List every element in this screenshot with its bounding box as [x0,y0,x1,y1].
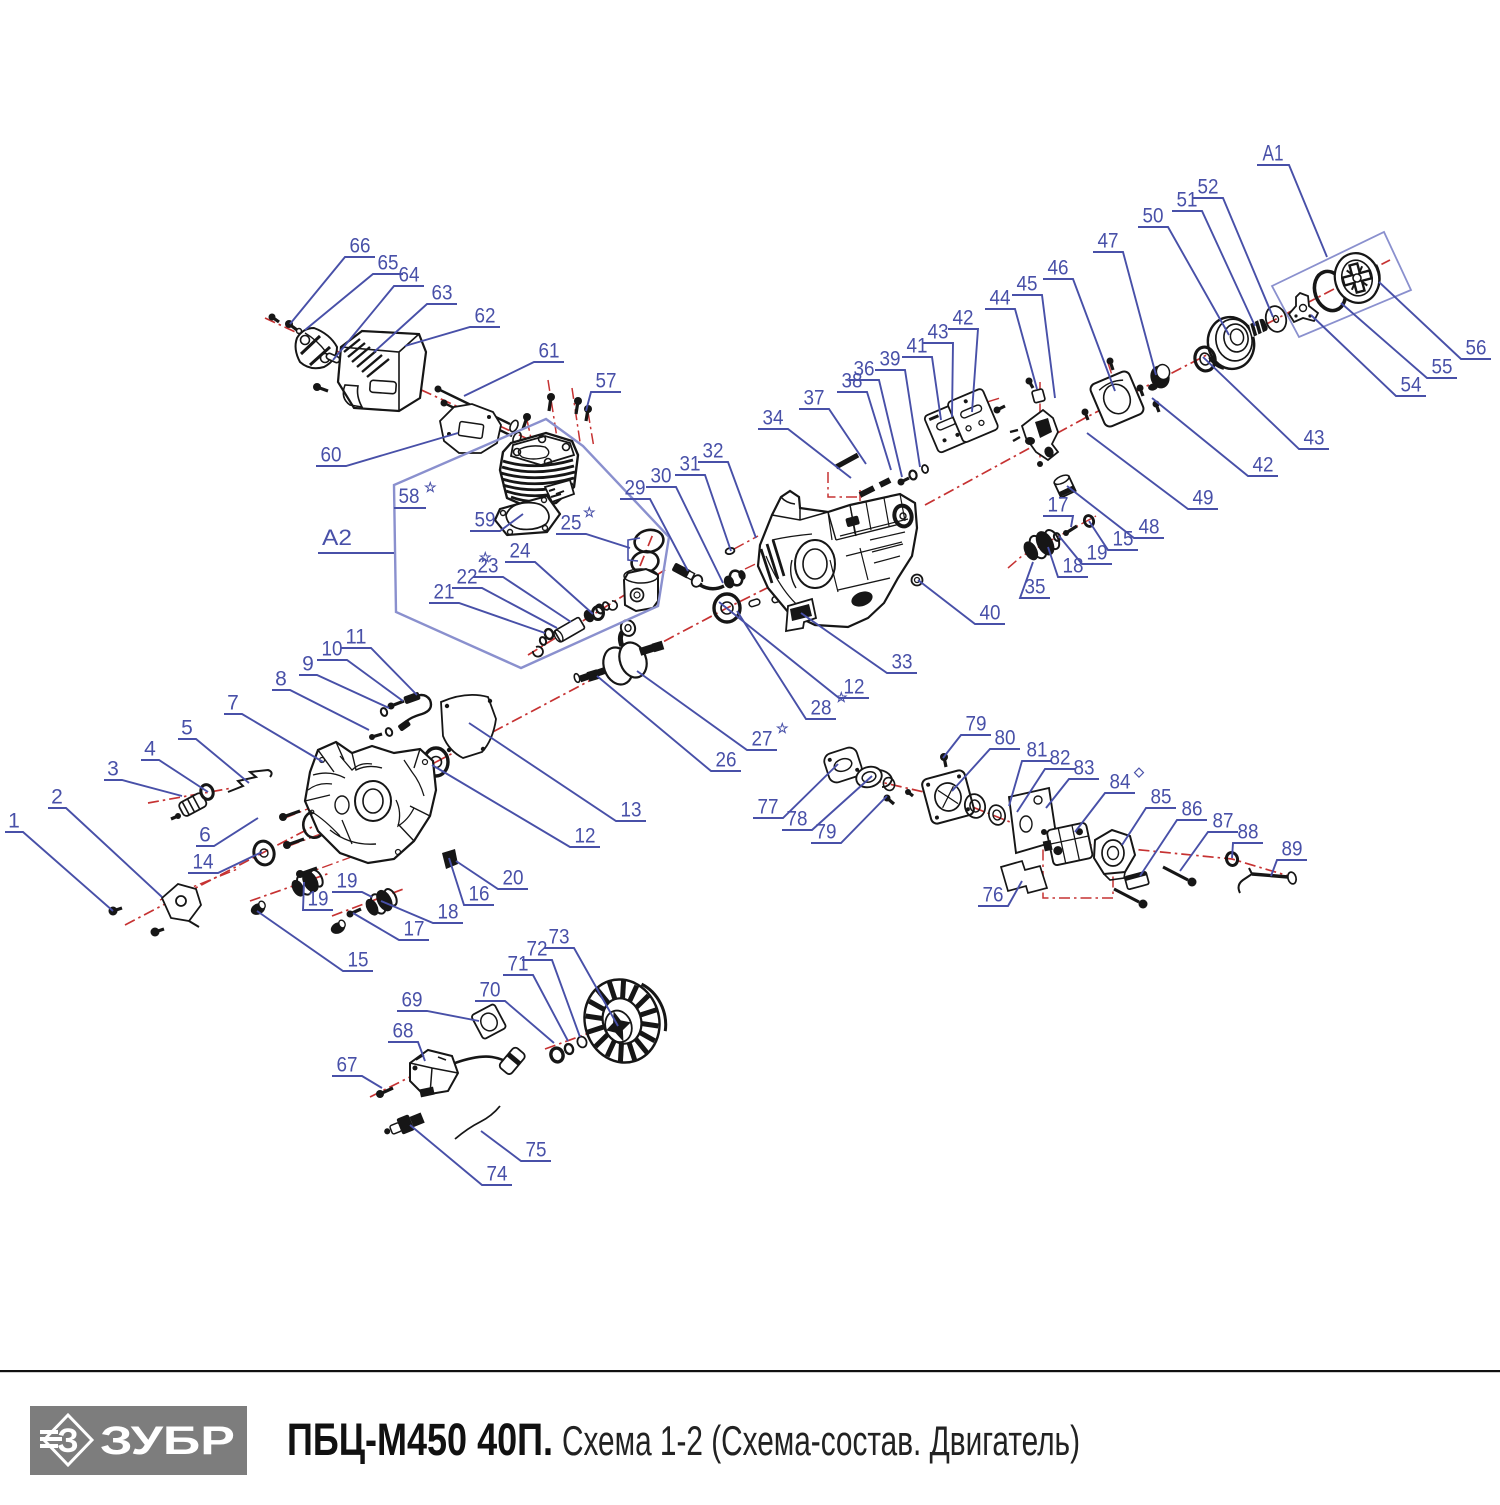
svg-text:46: 46 [1048,257,1069,280]
svg-text:79: 79 [966,713,987,736]
svg-text:28: 28 [811,697,832,720]
svg-text:42: 42 [1253,454,1274,477]
svg-text:33: 33 [892,651,913,674]
svg-text:51: 51 [1177,189,1198,212]
svg-text:20: 20 [503,867,524,890]
svg-text:39: 39 [880,348,901,371]
svg-text:17: 17 [404,918,425,941]
svg-text:73: 73 [549,926,570,949]
svg-text:37: 37 [804,387,825,410]
svg-text:15: 15 [1113,528,1134,551]
svg-text:7: 7 [227,692,239,715]
svg-text:ПБЦ-М450 40П.: ПБЦ-М450 40П. [287,1414,553,1465]
svg-text:86: 86 [1182,798,1203,821]
svg-text:47: 47 [1098,230,1119,253]
svg-text:ЗУБР: ЗУБР [100,1419,235,1463]
svg-text:57: 57 [596,370,617,393]
svg-text:26: 26 [716,749,737,772]
svg-text:89: 89 [1282,838,1303,861]
svg-text:16: 16 [469,883,490,906]
svg-text:11: 11 [346,626,367,649]
svg-text:45: 45 [1017,273,1038,296]
svg-text:☆: ☆ [479,549,492,565]
svg-text:60: 60 [321,444,342,467]
svg-text:◇: ◇ [1134,764,1144,779]
svg-text:52: 52 [1198,176,1219,199]
svg-text:29: 29 [625,477,646,500]
svg-text:72: 72 [527,938,548,961]
svg-text:64: 64 [399,264,420,287]
svg-text:76: 76 [983,884,1004,907]
svg-text:Схема 1-2 (Схема-состав. Двига: Схема 1-2 (Схема-состав. Двигатель) [562,1417,1080,1464]
svg-text:15: 15 [348,949,369,972]
svg-text:18: 18 [1063,555,1084,578]
svg-text:67: 67 [337,1054,358,1077]
svg-text:19: 19 [337,870,358,893]
svg-text:68: 68 [393,1020,414,1043]
svg-text:19: 19 [308,888,329,911]
svg-text:85: 85 [1151,786,1172,809]
svg-text:63: 63 [432,282,453,305]
svg-text:70: 70 [480,979,501,1002]
svg-text:☆: ☆ [835,689,848,705]
svg-text:18: 18 [438,901,459,924]
svg-text:43: 43 [928,321,949,344]
svg-text:41: 41 [907,335,928,358]
svg-text:40: 40 [980,602,1001,625]
svg-text:80: 80 [995,727,1016,750]
svg-text:83: 83 [1074,757,1095,780]
svg-text:35: 35 [1025,576,1046,599]
svg-text:48: 48 [1139,516,1160,539]
svg-text:8: 8 [275,668,287,691]
svg-text:14: 14 [193,851,214,874]
svg-text:79: 79 [816,821,837,844]
svg-text:58: 58 [399,485,420,508]
svg-text:25: 25 [561,512,582,535]
svg-text:87: 87 [1213,810,1234,833]
svg-text:6: 6 [199,824,211,847]
svg-text:55: 55 [1432,356,1453,379]
svg-text:74: 74 [487,1163,508,1186]
svg-text:4: 4 [144,738,156,761]
svg-text:17: 17 [1048,494,1069,517]
svg-text:42: 42 [953,307,974,330]
svg-text:77: 77 [758,796,779,819]
svg-text:54: 54 [1401,374,1422,397]
svg-text:75: 75 [526,1139,547,1162]
svg-text:21: 21 [434,581,455,604]
svg-text:49: 49 [1193,487,1214,510]
svg-text:3: 3 [107,758,119,781]
svg-text:A1: A1 [1263,141,1284,166]
svg-text:62: 62 [475,305,496,328]
svg-text:A2: A2 [322,525,352,550]
svg-text:5: 5 [181,717,193,740]
svg-text:38: 38 [842,370,863,393]
svg-text:61: 61 [539,340,560,363]
svg-text:71: 71 [508,953,529,976]
svg-text:30: 30 [651,465,672,488]
svg-text:88: 88 [1238,821,1259,844]
svg-text:81: 81 [1027,739,1048,762]
svg-text:12: 12 [575,825,596,848]
svg-text:31: 31 [680,453,701,476]
svg-text:44: 44 [990,287,1011,310]
svg-text:34: 34 [763,407,784,430]
svg-text:43: 43 [1304,427,1325,450]
svg-text:З: З [57,1422,78,1460]
svg-text:☆: ☆ [583,504,596,520]
svg-text:66: 66 [350,235,371,258]
svg-text:9: 9 [302,653,314,676]
svg-text:32: 32 [703,440,724,463]
svg-text:78: 78 [787,808,808,831]
svg-text:59: 59 [475,509,496,532]
svg-text:27: 27 [752,728,773,751]
svg-text:2: 2 [51,786,63,809]
svg-text:50: 50 [1143,205,1164,228]
svg-text:24: 24 [510,540,531,563]
svg-text:56: 56 [1466,337,1487,360]
svg-text:69: 69 [402,989,423,1012]
svg-text:82: 82 [1050,747,1071,770]
svg-text:13: 13 [621,799,642,822]
svg-text:☆: ☆ [776,720,789,736]
svg-text:65: 65 [378,252,399,275]
svg-text:☆: ☆ [424,479,437,495]
svg-text:1: 1 [8,810,20,833]
svg-text:10: 10 [322,638,343,661]
svg-text:84: 84 [1110,771,1131,794]
